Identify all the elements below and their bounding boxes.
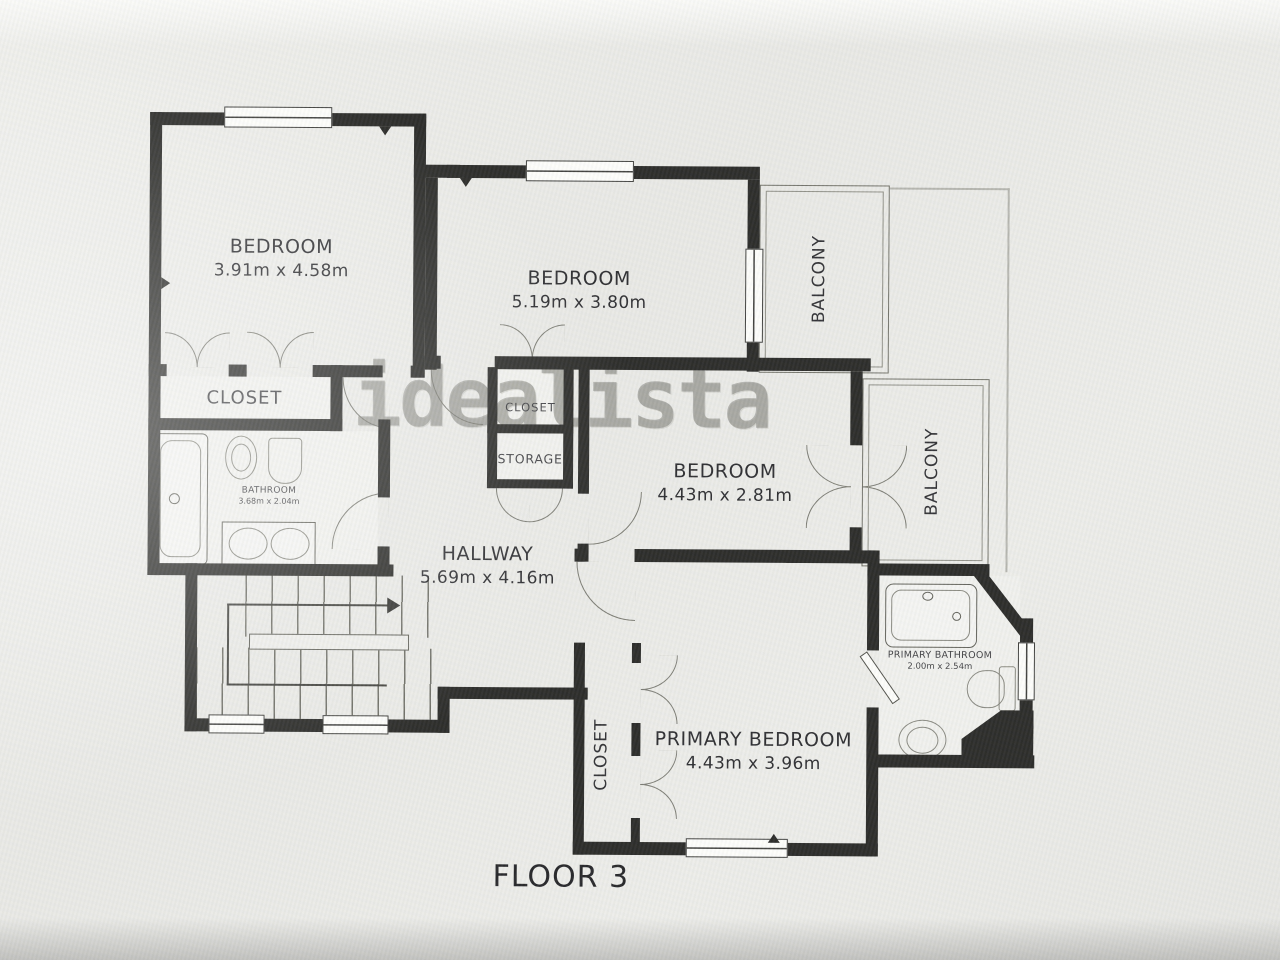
wall-segment bbox=[147, 563, 393, 577]
window bbox=[1018, 642, 1035, 700]
wall-segment bbox=[148, 418, 342, 431]
wall-segment bbox=[184, 563, 197, 731]
stairs-arrow-head bbox=[387, 597, 400, 613]
floorplan: BEDROOM 3.91m x 4.58m BEDROOM 5.19m x 3.… bbox=[0, 0, 1280, 960]
room-label-closet2: CLOSET bbox=[490, 400, 570, 414]
room-name: PRIMARY BATHROOM bbox=[877, 649, 1003, 661]
room-dimensions: 3.68m x 2.04m bbox=[212, 496, 326, 506]
closet-door-arc bbox=[197, 332, 230, 367]
window bbox=[224, 106, 332, 128]
room-dimensions: 5.19m x 3.80m bbox=[454, 292, 704, 314]
window bbox=[208, 714, 264, 733]
room-name: HALLWAY bbox=[377, 542, 597, 565]
closet-door-arc bbox=[247, 332, 281, 368]
wall-segment bbox=[425, 178, 438, 370]
room-name: PRIMARY BEDROOM bbox=[618, 728, 888, 752]
wall-segment bbox=[495, 356, 871, 371]
wall-segment bbox=[573, 643, 585, 855]
room-label-closet-primary: CLOSET bbox=[591, 690, 612, 820]
wall-segment bbox=[438, 687, 588, 700]
wall-segment bbox=[634, 549, 879, 563]
wall-segment bbox=[850, 371, 862, 445]
sink-inner bbox=[906, 727, 938, 754]
wall-segment bbox=[632, 643, 641, 663]
room-name: BEDROOM bbox=[161, 235, 401, 258]
room-label-bedroom1: BEDROOM 3.91m x 4.58m bbox=[161, 235, 401, 281]
wall-segment bbox=[747, 180, 759, 252]
room-label-balcony-top: BALCONY bbox=[809, 213, 830, 345]
faucet-icon bbox=[952, 612, 961, 621]
room-label-bathroom: BATHROOM 3.68m x 2.04m bbox=[212, 485, 326, 506]
wall-segment bbox=[487, 479, 573, 489]
faucet-icon bbox=[922, 592, 933, 601]
room-dimensions: 2.00m x 2.54m bbox=[877, 661, 1003, 672]
bidet-symbol bbox=[268, 438, 302, 484]
room-dimensions: 4.43m x 2.81m bbox=[600, 485, 850, 507]
terrace-line bbox=[890, 188, 1010, 191]
wall-tick bbox=[379, 126, 391, 135]
window bbox=[322, 715, 388, 734]
closet-door-arc bbox=[165, 332, 198, 367]
wall-tick bbox=[460, 178, 472, 187]
closet-door-arc bbox=[641, 655, 678, 690]
room-label-balcony-right: BALCONY bbox=[922, 406, 943, 538]
room-dimensions: 5.69m x 4.16m bbox=[377, 567, 597, 588]
room-label-bedroom3: BEDROOM 4.43m x 2.81m bbox=[600, 460, 850, 507]
room-label-closet1: CLOSET bbox=[170, 387, 318, 409]
wall-segment bbox=[313, 365, 383, 377]
storage-door-arc bbox=[496, 488, 530, 522]
floorplan-photo: BEDROOM 3.91m x 4.58m BEDROOM 5.19m x 3.… bbox=[0, 0, 1280, 960]
wall-tick bbox=[785, 554, 797, 563]
room-name: BATHROOM bbox=[212, 485, 326, 496]
bathtub-inner bbox=[160, 440, 202, 557]
room-label-storage: STORAGE bbox=[487, 451, 573, 467]
room-dimensions: 4.43m x 3.96m bbox=[618, 753, 888, 775]
wall-segment bbox=[149, 364, 167, 376]
stairs-landing bbox=[249, 634, 409, 651]
wall-segment bbox=[330, 365, 342, 431]
terrace-line bbox=[1005, 188, 1009, 572]
drain-icon bbox=[169, 493, 180, 504]
closet-door-arc bbox=[641, 689, 678, 724]
toilet-tank bbox=[999, 666, 1016, 711]
wall-segment bbox=[578, 368, 590, 494]
sink-symbol bbox=[271, 528, 310, 560]
window bbox=[526, 160, 634, 182]
room-name: BEDROOM bbox=[600, 460, 850, 484]
room-label-primary-bathroom: PRIMARY BATHROOM 2.00m x 2.54m bbox=[877, 649, 1003, 672]
room-label-primary-bedroom: PRIMARY BEDROOM 4.43m x 3.96m bbox=[618, 728, 888, 775]
wall-segment bbox=[425, 356, 441, 369]
wall-tick bbox=[768, 834, 780, 843]
floor-title: FLOOR 3 bbox=[492, 859, 712, 895]
wall-segment bbox=[487, 424, 573, 434]
wall-segment bbox=[378, 419, 390, 497]
toilet-inner bbox=[231, 444, 251, 472]
wall-segment bbox=[411, 366, 425, 378]
room-name: BEDROOM bbox=[454, 267, 704, 291]
window bbox=[745, 249, 764, 343]
room-dimensions: 3.91m x 4.58m bbox=[161, 260, 401, 281]
closet-door-arc bbox=[280, 332, 314, 368]
sink-symbol bbox=[229, 527, 268, 559]
storage-door-arc bbox=[529, 488, 563, 522]
wall-segment bbox=[229, 364, 247, 376]
closet-door-arc bbox=[640, 784, 677, 819]
room-label-bedroom2: BEDROOM 5.19m x 3.80m bbox=[454, 267, 704, 314]
wall-segment bbox=[867, 563, 989, 576]
room-label-hallway: HALLWAY 5.69m x 4.16m bbox=[377, 542, 597, 588]
